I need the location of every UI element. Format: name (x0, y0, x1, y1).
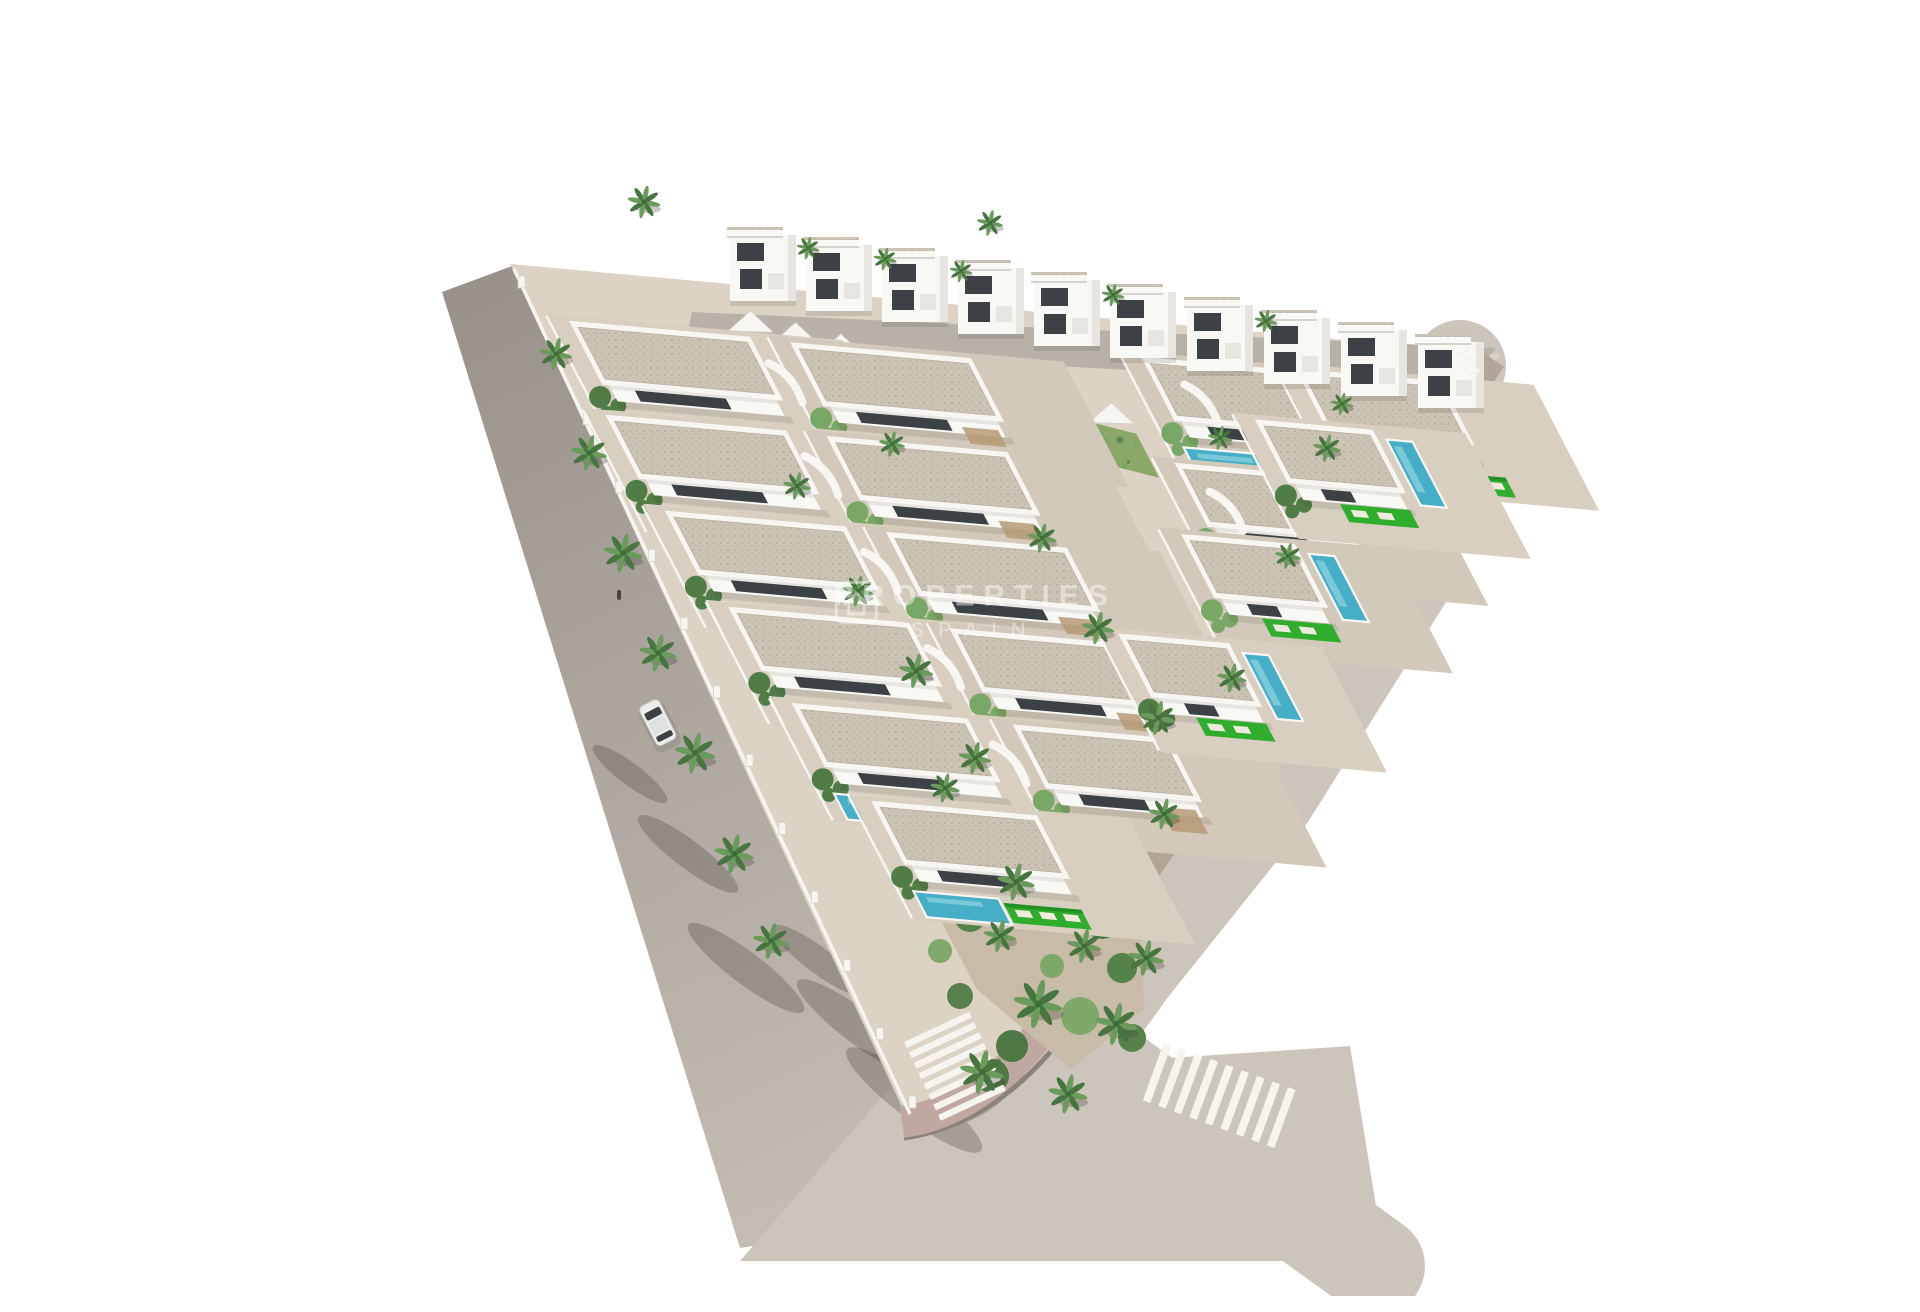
garden-bush (947, 983, 973, 1009)
garden-bush (1061, 997, 1099, 1035)
two-storey-villa (1338, 322, 1407, 401)
slope-speckle (1127, 460, 1130, 463)
bush (969, 693, 991, 715)
wall-post (648, 549, 655, 561)
aerial-render-figure: PROPERTIES SPAIN (40, 16, 1920, 1296)
bush (810, 407, 832, 429)
wall-post (779, 823, 786, 835)
garden-bush (996, 1030, 1028, 1062)
wall-post (909, 1096, 916, 1108)
bush (812, 768, 834, 790)
bush (748, 672, 770, 694)
aerial-render (40, 16, 1920, 1296)
bush (1285, 504, 1299, 518)
bush (625, 480, 647, 502)
pedestrian (617, 590, 621, 600)
bush (1275, 485, 1297, 507)
slope-speckle (1133, 442, 1139, 448)
two-storey-villa (1184, 297, 1253, 376)
two-storey-villa (1031, 272, 1100, 351)
wall-post (681, 618, 688, 630)
wall-post (714, 686, 721, 698)
bush (685, 576, 707, 598)
bush (589, 386, 611, 408)
bush (847, 501, 869, 523)
bush (891, 866, 913, 888)
bush (1211, 619, 1225, 633)
bush (906, 597, 928, 619)
garden-bush (1040, 954, 1064, 978)
bush (1033, 790, 1055, 812)
bush (1201, 599, 1223, 621)
slope-speckle (1116, 436, 1123, 443)
wall-post (518, 276, 525, 288)
wall-post (746, 754, 753, 766)
slope-speckle (1122, 463, 1128, 469)
wall-post (876, 1028, 883, 1040)
bush (1161, 422, 1183, 444)
two-storey-villa (727, 227, 796, 306)
wall-post (811, 891, 818, 903)
wall-post (844, 959, 851, 971)
garden-bush (928, 939, 952, 963)
